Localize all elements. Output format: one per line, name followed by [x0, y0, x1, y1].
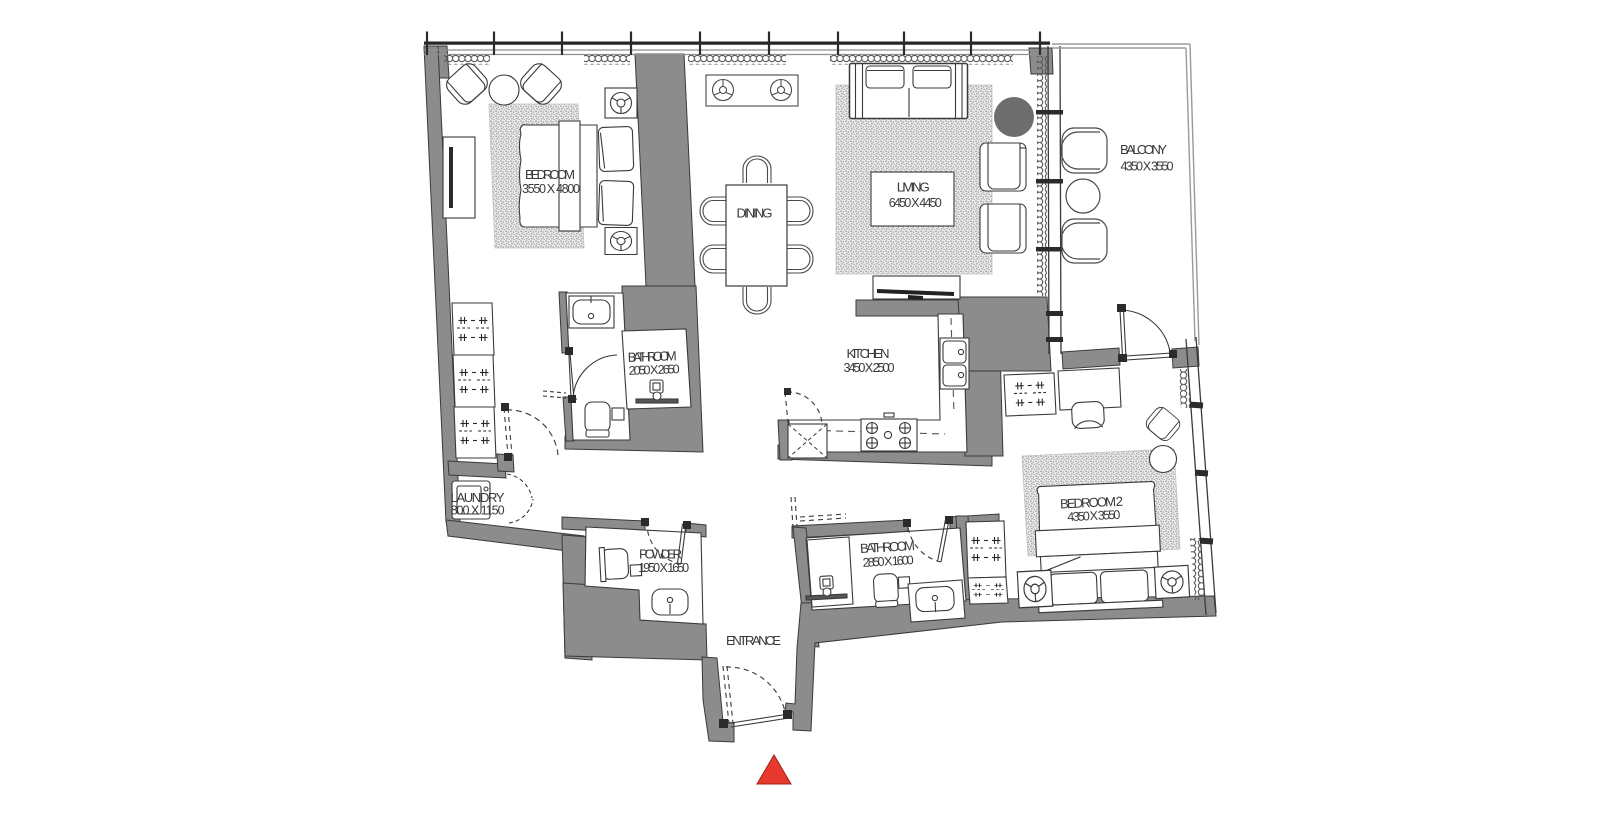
svg-text:3450 X 2500: 3450 X 2500	[844, 361, 895, 375]
svg-text:POWDER: POWDER	[639, 547, 682, 562]
svg-text:ENTRANCE: ENTRANCE	[726, 633, 781, 648]
svg-text:2850 X 1600: 2850 X 1600	[862, 553, 914, 570]
svg-text:DINING: DINING	[737, 206, 773, 221]
svg-text:4350 X 3550: 4350 X 3550	[1121, 159, 1174, 173]
svg-text:KITCHEN: KITCHEN	[847, 346, 890, 361]
svg-text:LIVING: LIVING	[897, 179, 930, 194]
svg-text:BALCONY: BALCONY	[1120, 142, 1167, 157]
svg-text:2050 X 2650: 2050 X 2650	[628, 362, 679, 378]
svg-text:4350 X 3550: 4350 X 3550	[1067, 508, 1121, 524]
svg-text:6450 X 4450: 6450 X 4450	[889, 196, 942, 210]
svg-text:3550 X 4800: 3550 X 4800	[522, 182, 580, 196]
svg-text:BEDROOM: BEDROOM	[525, 167, 575, 182]
svg-text:800 X 1150: 800 X 1150	[451, 504, 505, 518]
svg-text:1950 X 1650: 1950 X 1650	[638, 561, 689, 575]
